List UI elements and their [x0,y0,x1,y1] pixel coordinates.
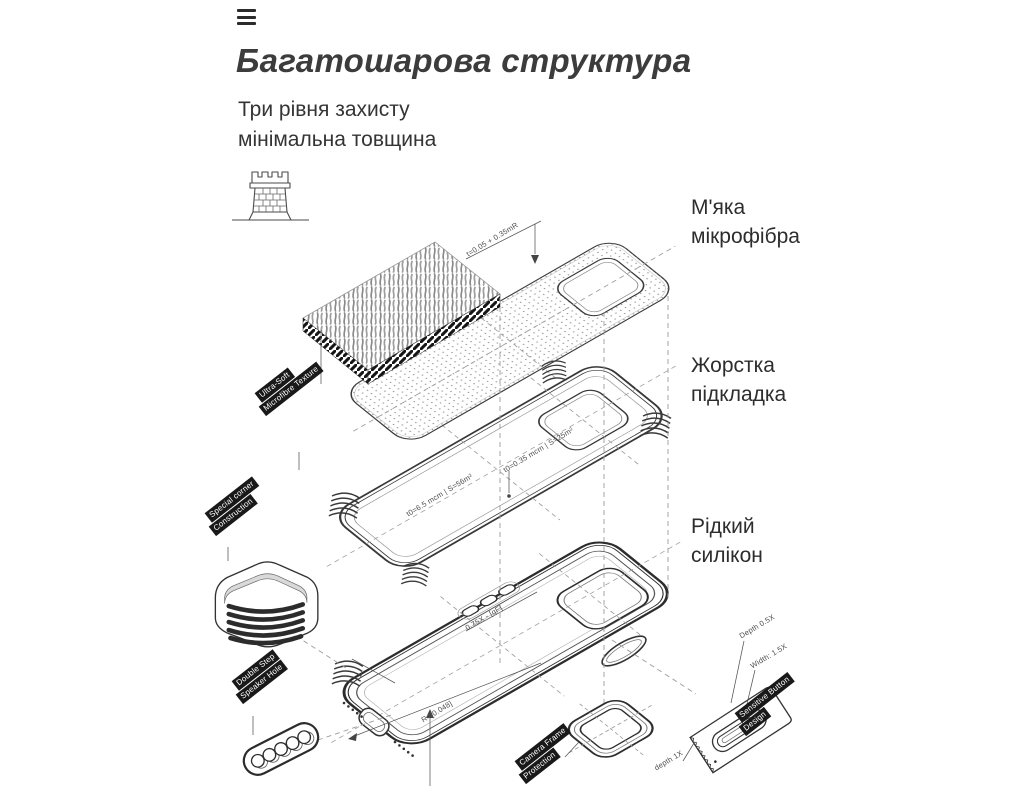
label-liquid-silicone: Рідкий силікон [691,512,763,570]
menu-button[interactable] [237,9,256,27]
page-subtitle: Три рівня захисту мінімальна товщина [238,95,436,155]
silicone-case-layer [271,493,744,793]
label-hard-lining: Жорстка підкладка [691,351,786,409]
hamburger-icon [237,22,256,25]
subtitle-line-2: мінімальна товщина [238,125,436,155]
castle-tower-icon [232,172,309,220]
exploded-case-diagram [0,0,1024,800]
page-title: Багатошарова структура [236,42,691,80]
hamburger-icon [237,16,256,19]
label-soft-microfiber: М'яка мікрофібра [691,193,800,251]
speaker-holes-detail [239,718,323,779]
corner-detail [215,562,317,647]
product-infographic-page: Багатошарова структура Три рівня захисту… [0,0,1024,800]
hamburger-icon [237,9,256,12]
subtitle-line-1: Три рівня захисту [238,95,436,125]
